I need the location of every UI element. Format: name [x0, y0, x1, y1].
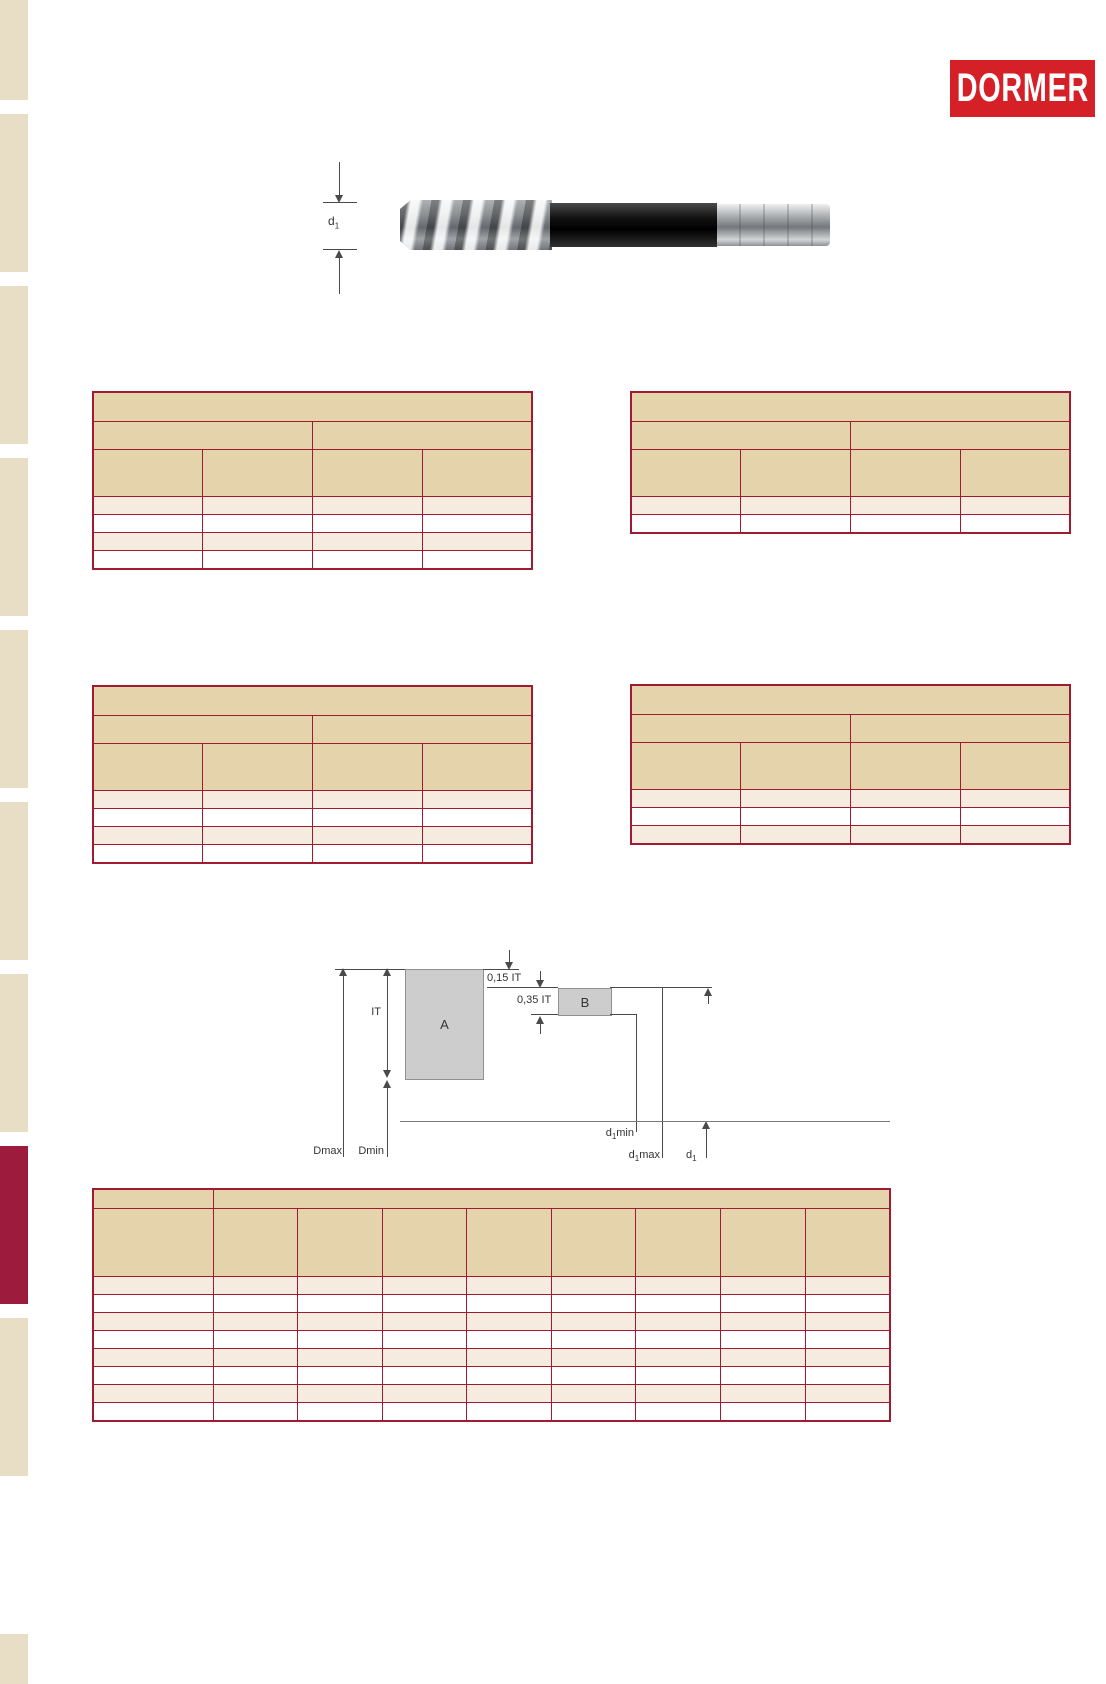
dmin-label: Dmin	[341, 1145, 384, 1157]
tolerance-zone-b: B	[558, 988, 612, 1016]
d1min-line	[636, 1014, 637, 1132]
it-arrowhead-bottom-icon	[383, 1070, 391, 1078]
d1max-line	[662, 988, 663, 1158]
dmin-arrowhead-icon	[383, 1080, 391, 1088]
it-line	[387, 976, 388, 1070]
arrow-035-bottom-tail	[540, 1024, 541, 1034]
d1-diameter-label: d1	[328, 214, 339, 230]
sidebar-tab-block	[0, 1634, 28, 1684]
d1-arrow-line-bottom	[339, 258, 340, 294]
sidebar-tab-block	[0, 458, 28, 616]
tolerance-table	[92, 1188, 891, 1422]
sidebar-tab-block	[0, 0, 28, 100]
a-top-extension-line	[335, 969, 407, 970]
d1-top-arrow-tail	[708, 996, 709, 1004]
b-top-left-line	[487, 987, 558, 988]
it-label: IT	[355, 1006, 381, 1018]
reamer-flutes	[400, 200, 552, 250]
d1-baseline-arrow-tail	[706, 1129, 707, 1158]
dmax-line	[343, 976, 344, 1157]
b-bottom-right-line	[610, 1014, 637, 1015]
d1-tick-top	[323, 202, 357, 203]
d1-baseline-arrowhead-icon	[702, 1121, 710, 1129]
dormer-logo-text: DORMER	[956, 60, 1088, 117]
d1min-label: d1min	[596, 1127, 634, 1141]
sidebar-tab-active	[0, 1146, 28, 1304]
reamer-black-section	[550, 203, 717, 247]
spec-table-top-right	[630, 391, 1071, 534]
d1max-label: d1max	[620, 1149, 660, 1163]
tolerance-zone-a: A	[405, 969, 484, 1080]
b-bottom-left-tick	[531, 1014, 558, 1015]
d1-label: d1	[686, 1149, 697, 1163]
dormer-logo: DORMER	[950, 60, 1095, 117]
d1-arrow-line-top	[339, 162, 340, 196]
catalog-page: DORMER d1 IT A B 0,15 IT	[0, 0, 1106, 1684]
label-035-it: 0,35 IT	[517, 994, 551, 1006]
reamer-photo	[400, 200, 830, 250]
dmin-line	[387, 1088, 388, 1157]
spec-table-mid-right	[630, 684, 1071, 845]
sidebar-tab-block	[0, 630, 28, 788]
reamer-shank	[717, 204, 830, 246]
sidebar-tab-block	[0, 286, 28, 444]
arrow-035-bottom-head-icon	[536, 1016, 544, 1024]
spec-table-top-left	[92, 391, 533, 570]
label-015-it: 0,15 IT	[487, 972, 521, 984]
dmax-label: Dmax	[298, 1145, 342, 1157]
d1-top-arrowhead-icon	[704, 988, 712, 996]
arrow-015-head-icon	[505, 962, 513, 970]
sidebar-tab-block	[0, 114, 28, 272]
spec-table-mid-left	[92, 685, 533, 864]
sidebar-tab-block	[0, 1318, 28, 1476]
sidebar-tab-block	[0, 974, 28, 1132]
a-top-right-tick	[483, 969, 519, 970]
arrow-035-top-head-icon	[536, 980, 544, 988]
sidebar-tab-block	[0, 802, 28, 960]
b-top-right-line	[610, 987, 712, 988]
diagram-baseline	[400, 1121, 890, 1122]
d1-arrowhead-up-icon	[335, 250, 343, 258]
